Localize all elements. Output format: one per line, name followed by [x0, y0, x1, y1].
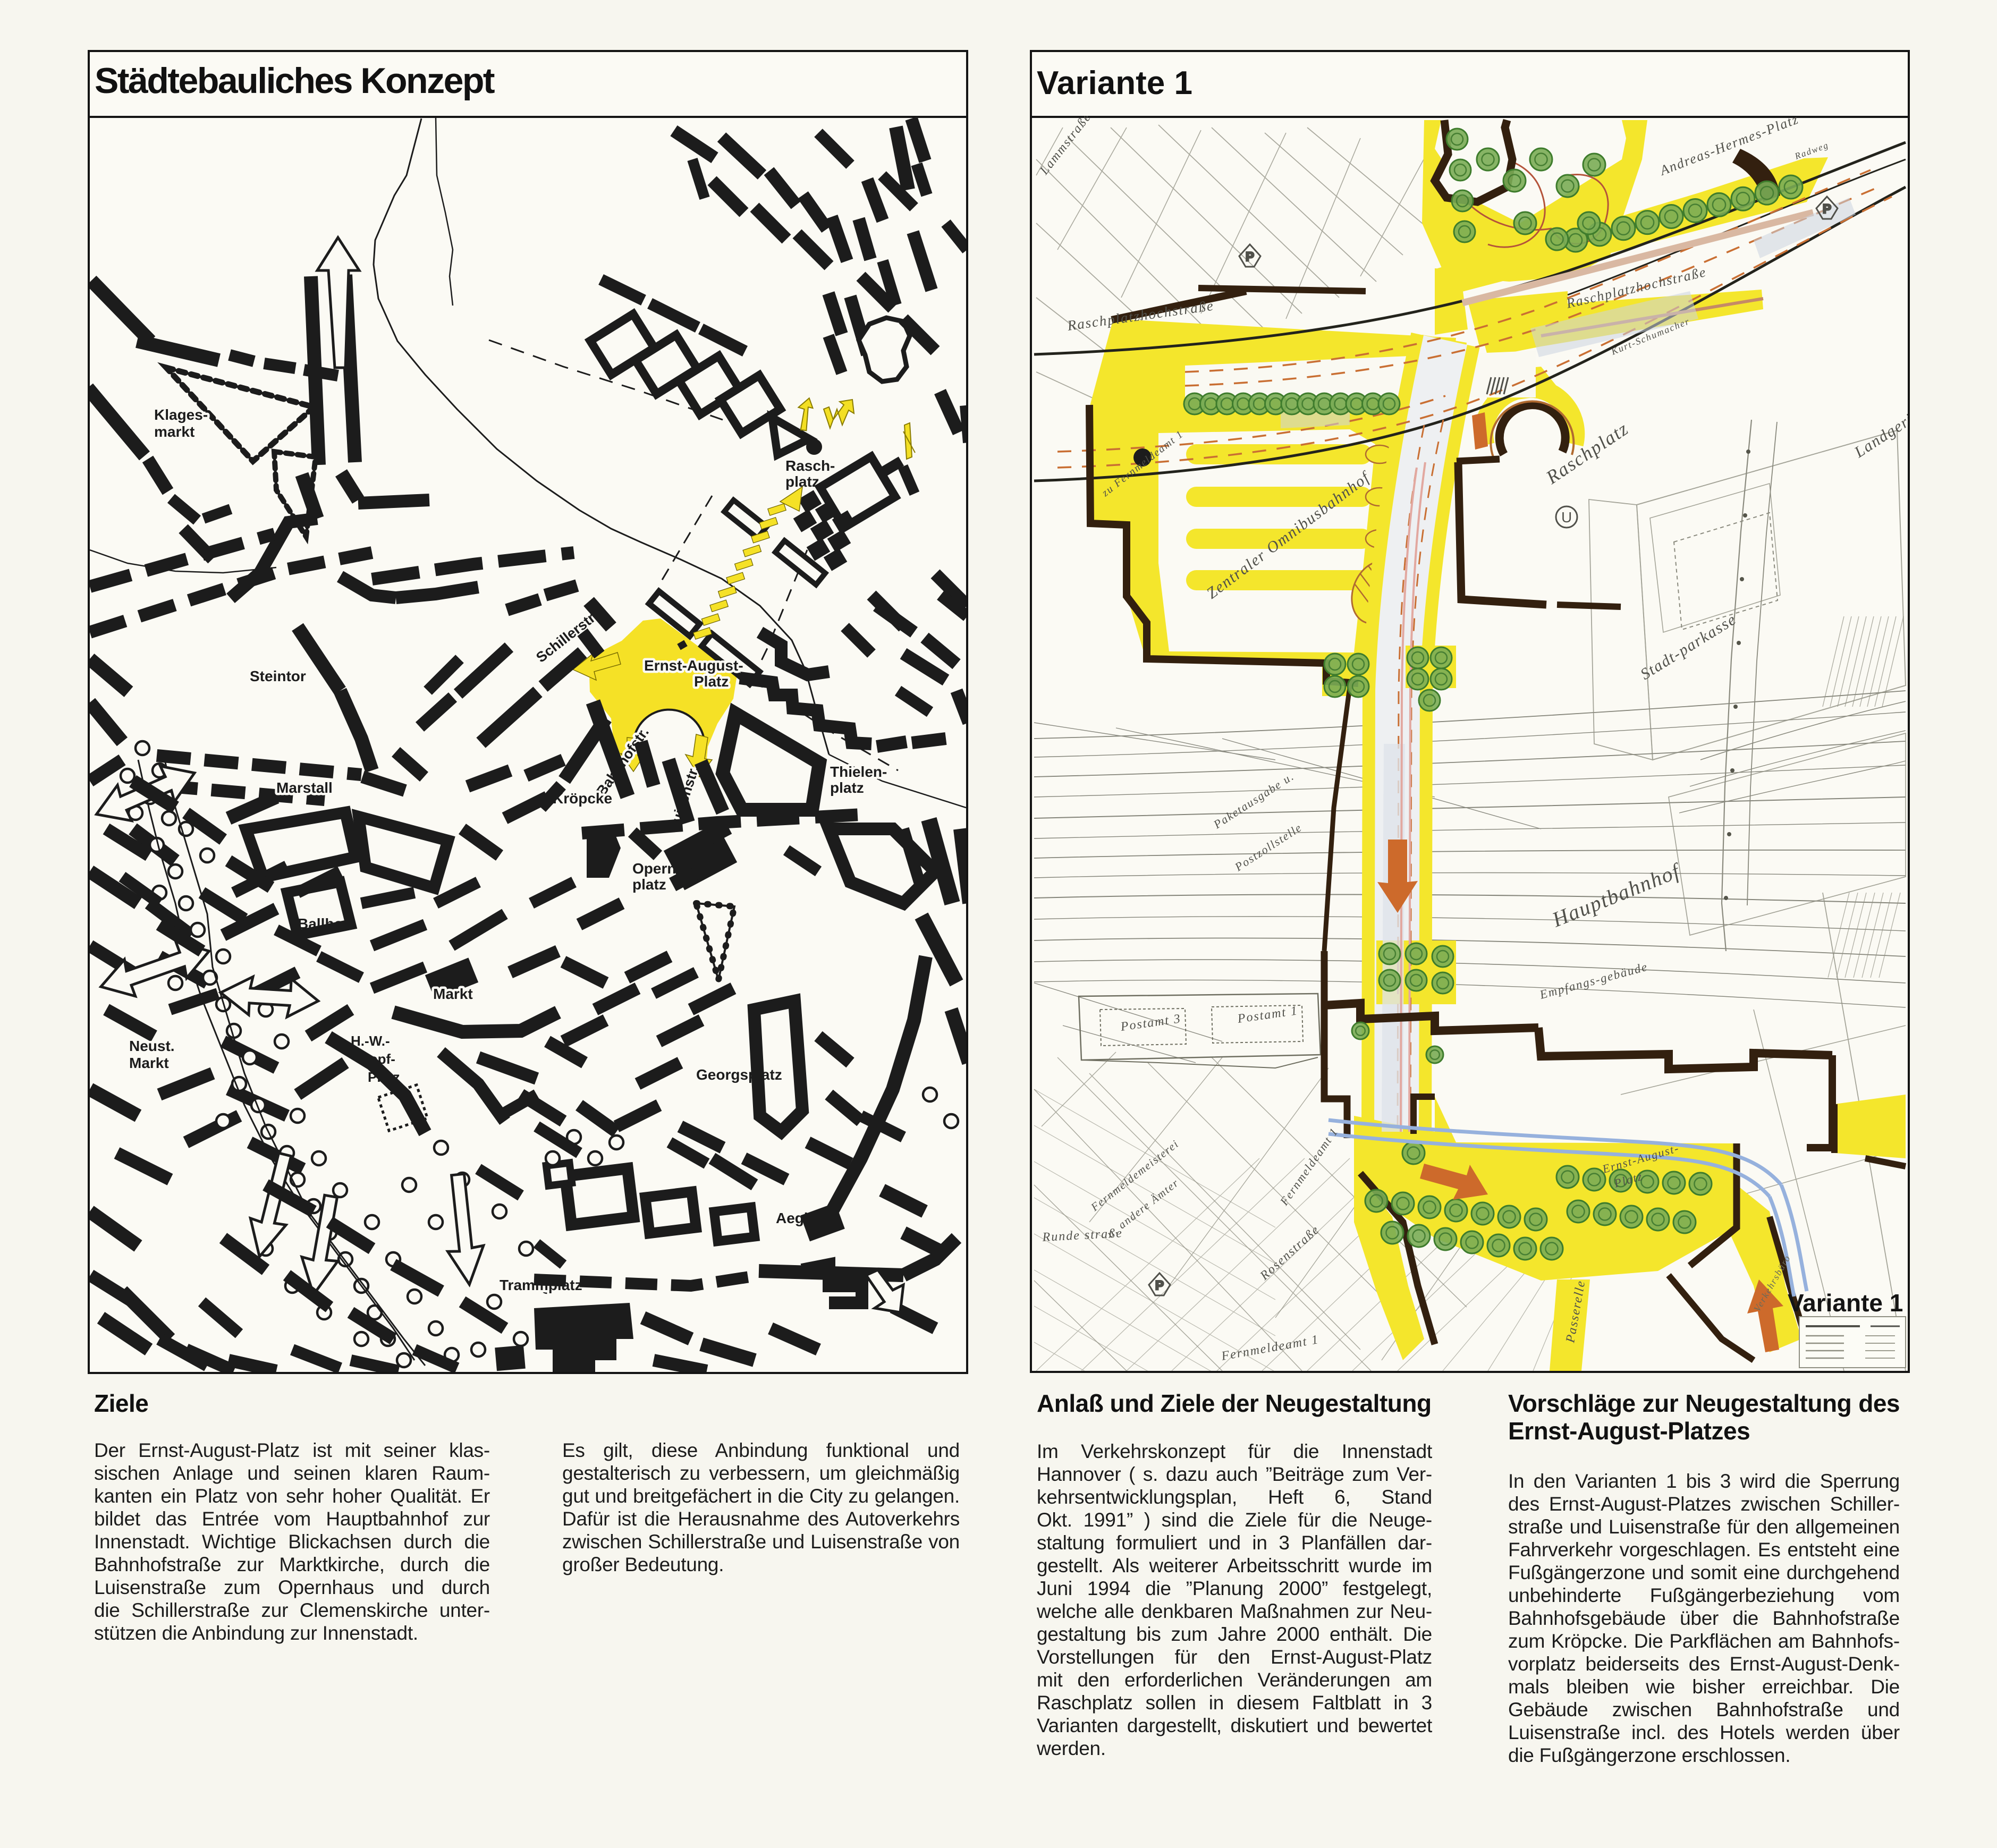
svg-text:Lammstraße: Lammstraße [1037, 116, 1094, 177]
svg-text:Raschplatz: Raschplatz [1542, 418, 1632, 488]
svg-text:Ernst-August-: Ernst-August- [644, 657, 743, 674]
svg-text:Platz: Platz [694, 673, 729, 690]
svg-text:Fernmeldemeisterei: Fernmeldemeisterei [1088, 1137, 1182, 1214]
svg-text:P: P [1246, 250, 1254, 264]
svg-text:Georgsplatz: Georgsplatz [696, 1066, 782, 1083]
svg-text:platz: platz [632, 876, 666, 893]
svg-text:Marstall: Marstall [276, 779, 333, 796]
svg-text:Rasch-: Rasch- [785, 457, 835, 474]
svg-text:Postamt 1: Postamt 1 [1236, 1004, 1299, 1026]
svg-text:Markt: Markt [433, 986, 473, 1002]
svg-text:P: P [1823, 202, 1831, 216]
svg-text:Landgericht: Landgericht [1851, 397, 1908, 461]
svg-text:Neust.: Neust. [129, 1038, 175, 1054]
svg-text:Stadt-parkasse: Stadt-parkasse [1637, 611, 1739, 683]
svg-text:U: U [1561, 509, 1572, 525]
svg-text:Markt: Markt [129, 1055, 169, 1071]
svg-text:Hauptbahnhof: Hauptbahnhof [1548, 858, 1685, 932]
svg-text:P: P [1155, 1278, 1164, 1293]
svg-text:Variante 1: Variante 1 [1788, 1289, 1903, 1317]
svg-text:markt: markt [154, 423, 194, 440]
svg-text:Postzollstelle: Postzollstelle [1232, 820, 1304, 874]
svg-text:Postamt 3: Postamt 3 [1119, 1012, 1182, 1034]
svg-text:Rosenstraße: Rosenstraße [1257, 1223, 1323, 1283]
svg-text:Fernmeldeamt 1: Fernmeldeamt 1 [1277, 1125, 1341, 1208]
svg-text:Paketausgabe u.: Paketausgabe u. [1211, 769, 1297, 832]
svg-text:platz: platz [830, 779, 864, 796]
svg-text:Klages-: Klages- [154, 406, 208, 423]
svg-text:Steintor: Steintor [250, 668, 306, 684]
svg-text:Thielen-: Thielen- [830, 764, 887, 780]
